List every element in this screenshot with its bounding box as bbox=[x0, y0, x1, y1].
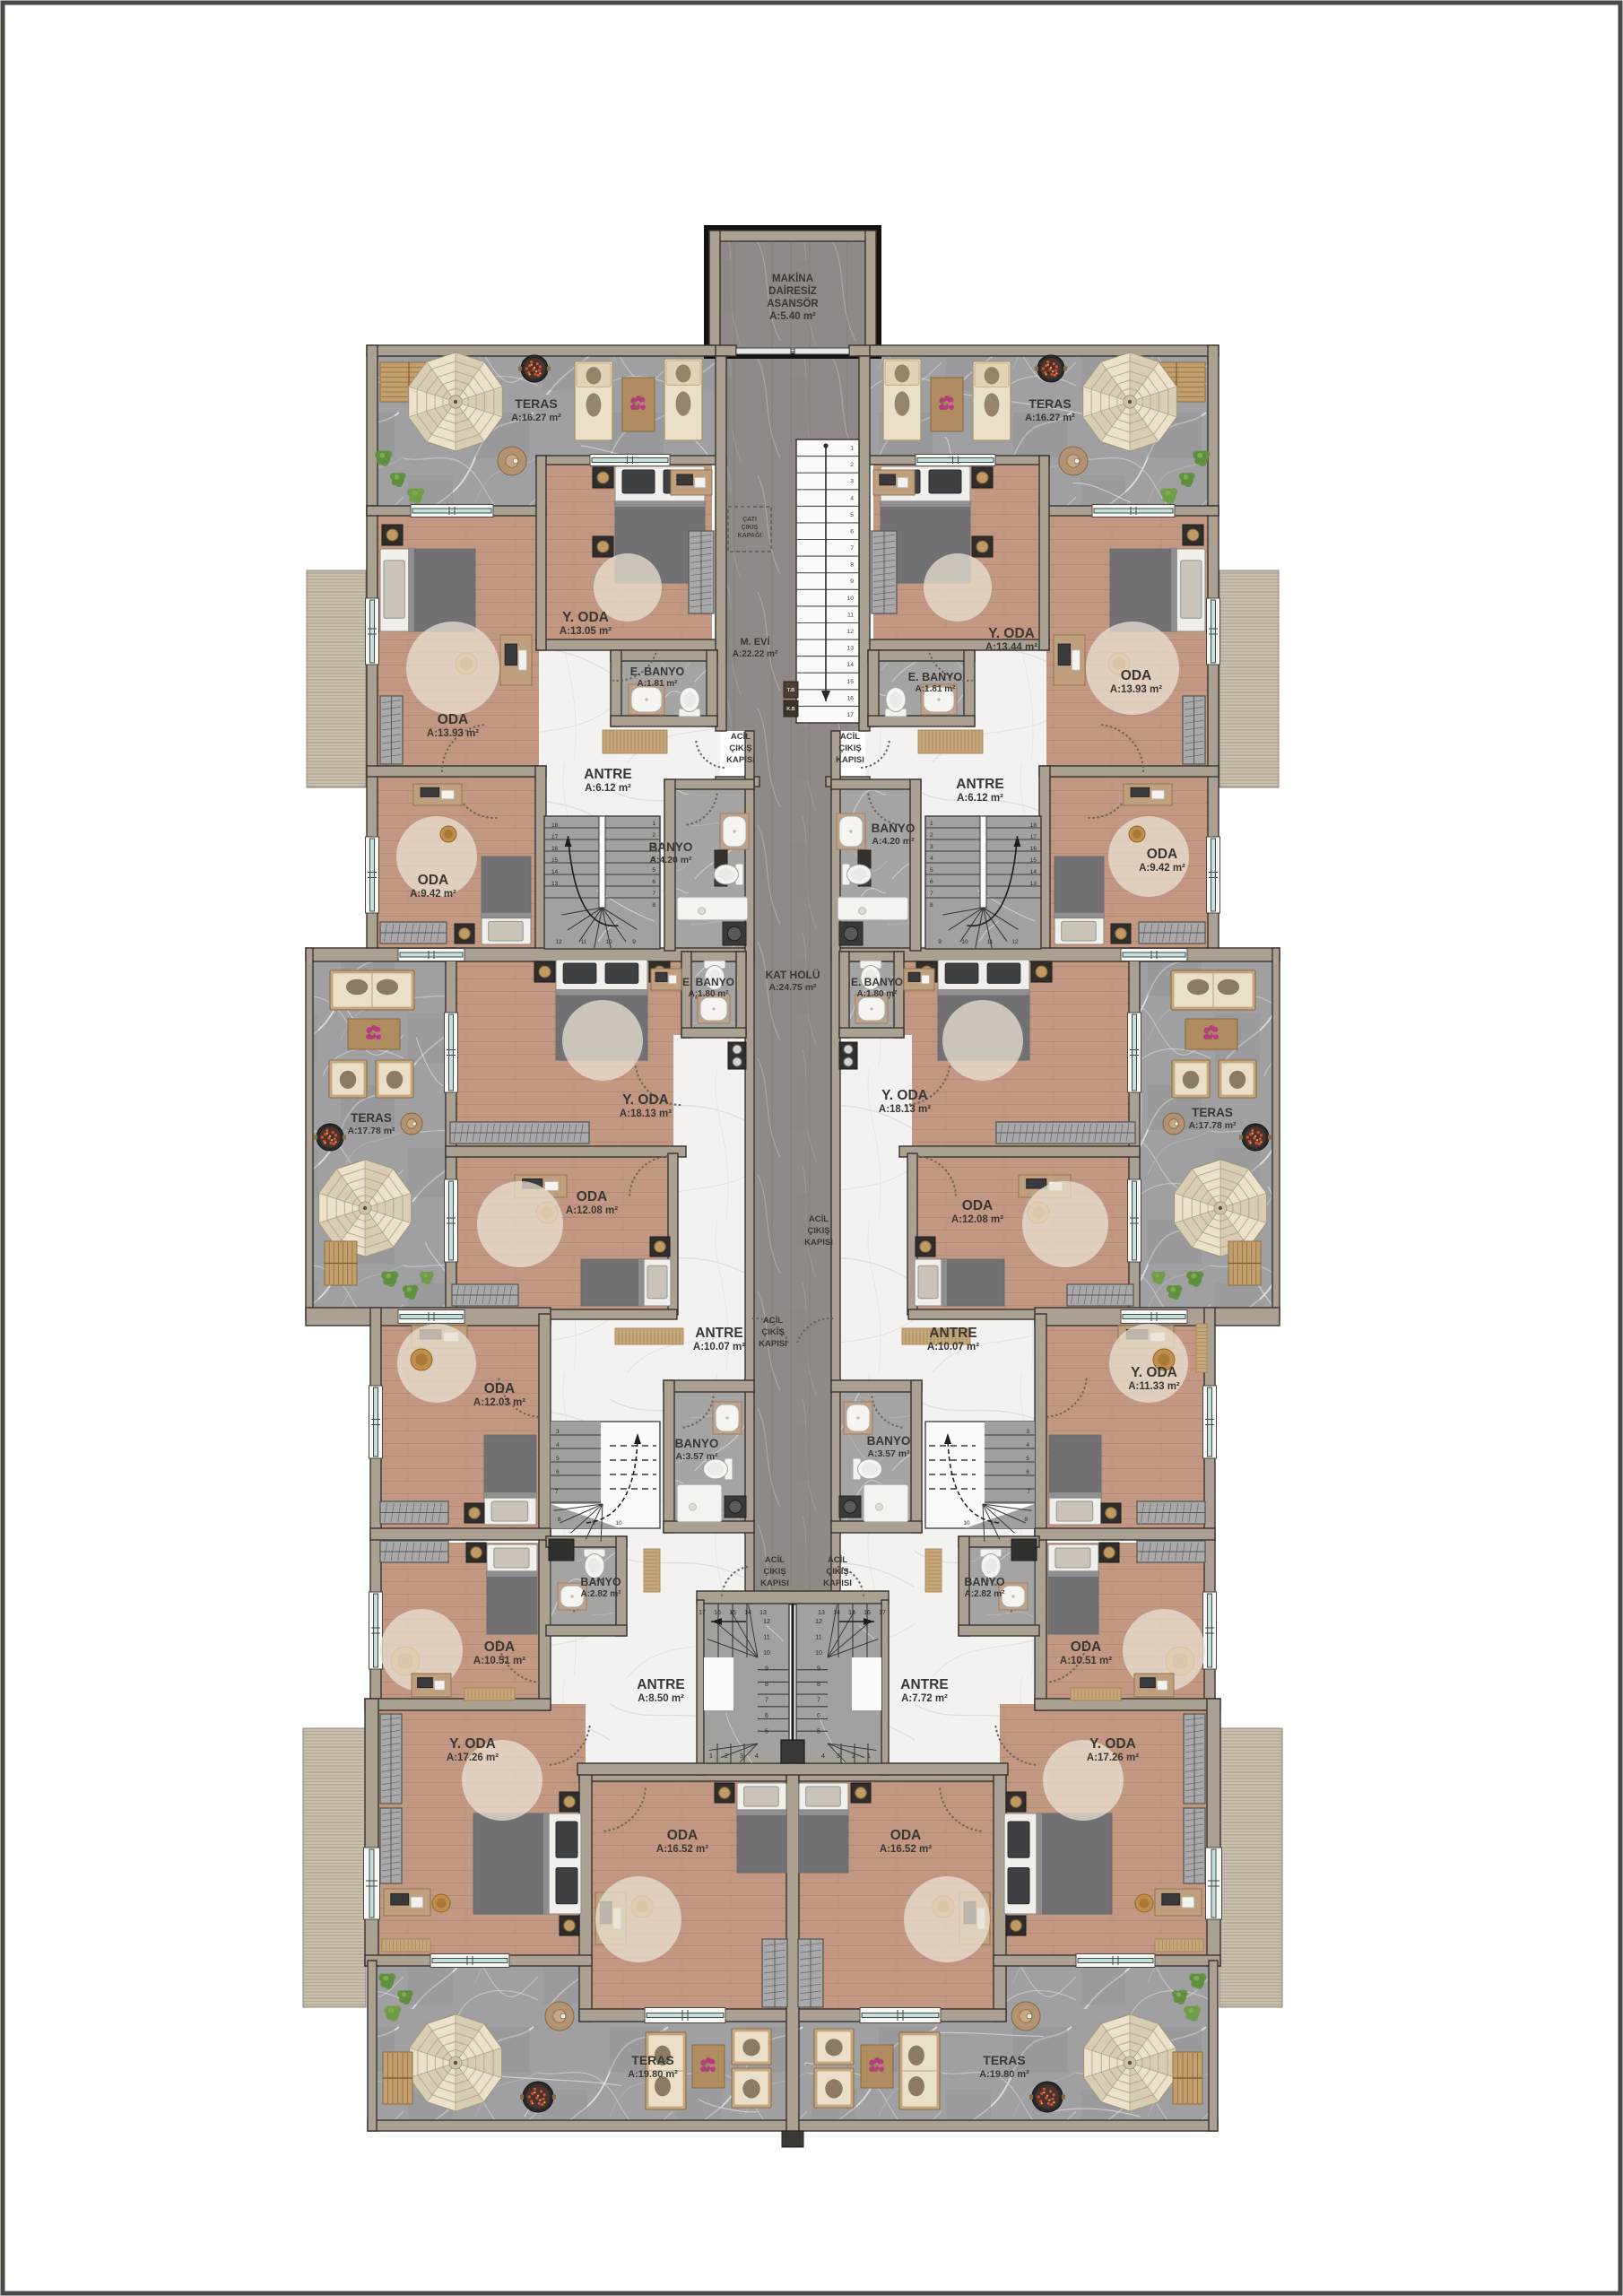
svg-text:Y. ODA: Y. ODA bbox=[881, 1088, 928, 1103]
svg-text:A:18.13 m²: A:18.13 m² bbox=[620, 1109, 672, 1119]
svg-text:7: 7 bbox=[930, 891, 933, 897]
svg-text:15: 15 bbox=[729, 1610, 736, 1616]
svg-text:Y. ODA: Y. ODA bbox=[449, 1736, 496, 1752]
svg-text:13: 13 bbox=[846, 646, 854, 652]
svg-text:3: 3 bbox=[1026, 1429, 1029, 1435]
svg-text:5: 5 bbox=[765, 1729, 768, 1735]
svg-text:DAİRESİZ: DAİRESİZ bbox=[768, 285, 817, 297]
svg-text:ACİL: ACİL bbox=[763, 1316, 783, 1326]
svg-text:Y. ODA: Y. ODA bbox=[1131, 1365, 1177, 1380]
svg-text:ODA: ODA bbox=[1121, 668, 1151, 683]
svg-text:KAPAĞI: KAPAĞI bbox=[738, 531, 762, 539]
svg-text:ACİL: ACİL bbox=[828, 1555, 847, 1565]
svg-text:6: 6 bbox=[556, 1469, 560, 1475]
svg-text:6: 6 bbox=[930, 879, 933, 885]
svg-text:KAPISI: KAPISI bbox=[759, 1339, 787, 1349]
svg-text:A:22.22 m²: A:22.22 m² bbox=[733, 649, 778, 659]
svg-text:7: 7 bbox=[817, 1698, 820, 1704]
svg-text:5: 5 bbox=[930, 867, 933, 874]
svg-text:9: 9 bbox=[592, 1520, 595, 1526]
svg-text:TERAS: TERAS bbox=[515, 396, 557, 411]
svg-text:17: 17 bbox=[551, 834, 559, 840]
svg-text:A:3.57 m²: A:3.57 m² bbox=[867, 1448, 910, 1459]
svg-text:TERAS: TERAS bbox=[983, 2053, 1025, 2067]
svg-text:ODA: ODA bbox=[484, 1381, 515, 1396]
svg-text:BANYO: BANYO bbox=[675, 1437, 719, 1450]
svg-text:E. BANYO: E. BANYO bbox=[630, 665, 685, 678]
svg-text:A:10.07 m²: A:10.07 m² bbox=[927, 1342, 979, 1352]
svg-text:ASANSÖR: ASANSÖR bbox=[767, 298, 819, 309]
svg-text:Y. ODA: Y. ODA bbox=[1089, 1736, 1136, 1752]
svg-text:14: 14 bbox=[551, 869, 559, 875]
svg-text:17: 17 bbox=[1030, 834, 1037, 840]
svg-text:KAPISI: KAPISI bbox=[823, 1578, 852, 1588]
svg-text:A:4.20 m²: A:4.20 m² bbox=[649, 855, 692, 865]
svg-text:1: 1 bbox=[867, 1753, 871, 1760]
svg-text:3: 3 bbox=[740, 1753, 743, 1760]
svg-text:ANTRE: ANTRE bbox=[929, 1326, 976, 1341]
svg-text:KAPISI: KAPISI bbox=[760, 1578, 789, 1588]
svg-text:3: 3 bbox=[837, 1753, 840, 1760]
svg-text:A:19.80 m²: A:19.80 m² bbox=[628, 2069, 678, 2080]
svg-text:KAPISI: KAPISI bbox=[726, 755, 755, 765]
svg-text:ÇIKIŞ: ÇIKIŞ bbox=[826, 1567, 848, 1577]
svg-text:10: 10 bbox=[963, 1520, 970, 1526]
svg-text:A:16.27 m²: A:16.27 m² bbox=[1025, 413, 1075, 423]
svg-text:12: 12 bbox=[763, 1619, 770, 1625]
svg-text:TERAS: TERAS bbox=[1192, 1106, 1233, 1119]
svg-text:9: 9 bbox=[765, 1666, 768, 1673]
svg-text:15: 15 bbox=[846, 679, 854, 685]
svg-text:3: 3 bbox=[930, 844, 933, 850]
svg-text:A:19.80 m²: A:19.80 m² bbox=[979, 2069, 1029, 2080]
svg-text:8: 8 bbox=[558, 1517, 561, 1523]
svg-text:BANYO: BANYO bbox=[867, 1434, 911, 1448]
svg-text:BANYO: BANYO bbox=[649, 840, 693, 854]
svg-text:A:2.82 m²: A:2.82 m² bbox=[964, 1589, 1005, 1599]
svg-text:9: 9 bbox=[632, 939, 636, 945]
svg-text:ACİL: ACİL bbox=[765, 1555, 785, 1565]
svg-text:A:17.78 m²: A:17.78 m² bbox=[347, 1126, 395, 1136]
svg-text:16: 16 bbox=[1030, 846, 1037, 852]
svg-text:11: 11 bbox=[847, 612, 854, 618]
svg-text:2: 2 bbox=[725, 1753, 728, 1760]
svg-text:14: 14 bbox=[833, 1610, 840, 1616]
svg-text:18: 18 bbox=[551, 822, 559, 829]
svg-text:9: 9 bbox=[850, 578, 854, 585]
svg-text:A:5.40 m²: A:5.40 m² bbox=[769, 311, 816, 322]
svg-text:TERAS: TERAS bbox=[1028, 396, 1071, 411]
svg-text:11: 11 bbox=[763, 1635, 769, 1641]
svg-text:T.B: T.B bbox=[787, 688, 794, 693]
svg-text:ÇATI: ÇATI bbox=[742, 517, 757, 523]
svg-text:ÇIKIŞ: ÇIKIŞ bbox=[742, 525, 759, 531]
svg-text:6: 6 bbox=[817, 1713, 820, 1719]
svg-text:13: 13 bbox=[551, 881, 559, 887]
svg-text:1: 1 bbox=[930, 821, 933, 827]
svg-text:ODA: ODA bbox=[667, 1828, 698, 1843]
svg-text:9: 9 bbox=[817, 1666, 820, 1673]
svg-text:14: 14 bbox=[1030, 869, 1037, 875]
svg-text:ANTRE: ANTRE bbox=[584, 767, 631, 782]
svg-text:7: 7 bbox=[1027, 1489, 1030, 1495]
svg-text:A:13.93 m²: A:13.93 m² bbox=[427, 728, 479, 739]
svg-text:A:16.52 m²: A:16.52 m² bbox=[656, 1844, 708, 1855]
svg-text:A:12.08 m²: A:12.08 m² bbox=[951, 1214, 1003, 1225]
svg-text:12: 12 bbox=[555, 939, 562, 945]
svg-text:10: 10 bbox=[605, 939, 612, 945]
svg-text:A:6.12 m²: A:6.12 m² bbox=[585, 783, 631, 794]
svg-text:ANTRE: ANTRE bbox=[695, 1326, 742, 1341]
svg-text:KAT HOLÜ: KAT HOLÜ bbox=[765, 968, 820, 981]
svg-text:ACİL: ACİL bbox=[731, 732, 751, 742]
svg-text:E. BANYO: E. BANYO bbox=[908, 671, 963, 683]
svg-text:15: 15 bbox=[551, 857, 559, 864]
svg-text:ODA: ODA bbox=[438, 712, 468, 727]
svg-text:1: 1 bbox=[652, 821, 655, 827]
svg-text:15: 15 bbox=[848, 1610, 855, 1616]
svg-text:TERAS: TERAS bbox=[351, 1111, 392, 1125]
svg-text:A:17.26 m²: A:17.26 m² bbox=[1087, 1752, 1139, 1763]
svg-text:ODA: ODA bbox=[890, 1828, 921, 1843]
svg-text:E. BANYO: E. BANYO bbox=[851, 976, 903, 988]
svg-text:12: 12 bbox=[1011, 939, 1019, 945]
svg-text:A:8.50 m²: A:8.50 m² bbox=[638, 1693, 684, 1704]
svg-text:Y. ODA: Y. ODA bbox=[988, 626, 1035, 641]
svg-text:2: 2 bbox=[652, 832, 655, 839]
svg-text:A:24.75 m²: A:24.75 m² bbox=[768, 982, 817, 993]
svg-text:17: 17 bbox=[699, 1610, 706, 1616]
svg-text:A:16.27 m²: A:16.27 m² bbox=[511, 413, 561, 423]
svg-text:ÇIKIŞ: ÇIKIŞ bbox=[729, 744, 751, 753]
svg-text:MAKİNA: MAKİNA bbox=[772, 273, 813, 284]
svg-text:BANYO: BANYO bbox=[964, 1576, 1004, 1588]
svg-text:A:9.42 m²: A:9.42 m² bbox=[1139, 863, 1185, 874]
svg-text:ÇIKIŞ: ÇIKIŞ bbox=[807, 1226, 829, 1236]
svg-text:10: 10 bbox=[961, 939, 968, 945]
svg-text:7: 7 bbox=[850, 545, 854, 552]
svg-text:BANYO: BANYO bbox=[872, 822, 916, 835]
svg-text:13: 13 bbox=[1030, 881, 1037, 887]
svg-text:6: 6 bbox=[765, 1713, 768, 1719]
svg-text:A:13.93 m²: A:13.93 m² bbox=[1110, 684, 1162, 695]
svg-text:A:12.08 m²: A:12.08 m² bbox=[566, 1205, 618, 1216]
svg-text:A:10.51 m²: A:10.51 m² bbox=[1060, 1656, 1112, 1666]
svg-text:ACİL: ACİL bbox=[840, 732, 860, 742]
svg-text:ODA: ODA bbox=[484, 1639, 515, 1655]
svg-text:A:16.52 m²: A:16.52 m² bbox=[880, 1844, 932, 1855]
svg-text:KAPISI: KAPISI bbox=[836, 755, 864, 765]
svg-text:11: 11 bbox=[987, 939, 994, 945]
svg-text:A:4.20 m²: A:4.20 m² bbox=[872, 836, 915, 847]
svg-text:16: 16 bbox=[864, 1610, 871, 1616]
svg-text:Y. ODA: Y. ODA bbox=[562, 610, 609, 625]
svg-text:1: 1 bbox=[850, 446, 854, 452]
svg-text:9: 9 bbox=[990, 1520, 994, 1526]
svg-text:10: 10 bbox=[815, 1650, 822, 1657]
svg-text:7: 7 bbox=[652, 891, 655, 897]
svg-text:ÇIKIŞ: ÇIKIŞ bbox=[763, 1567, 785, 1577]
svg-text:13: 13 bbox=[818, 1610, 825, 1616]
svg-text:5: 5 bbox=[850, 512, 854, 518]
svg-text:10: 10 bbox=[763, 1650, 770, 1657]
svg-text:2: 2 bbox=[850, 462, 854, 468]
svg-text:4: 4 bbox=[930, 856, 933, 862]
svg-text:16: 16 bbox=[714, 1610, 721, 1616]
svg-text:3: 3 bbox=[556, 1429, 560, 1435]
svg-text:ÇIKIŞ: ÇIKIŞ bbox=[838, 744, 861, 753]
svg-text:ODA: ODA bbox=[1147, 847, 1177, 862]
svg-text:ACİL: ACİL bbox=[809, 1214, 829, 1224]
svg-text:13: 13 bbox=[759, 1610, 767, 1616]
svg-text:A:1.80 m²: A:1.80 m² bbox=[688, 989, 729, 999]
svg-text:15: 15 bbox=[1030, 857, 1037, 864]
svg-text:M. EVİ: M. EVİ bbox=[740, 636, 769, 648]
svg-text:E. BANYO: E. BANYO bbox=[682, 976, 734, 988]
svg-text:4: 4 bbox=[850, 495, 854, 501]
svg-text:5: 5 bbox=[817, 1729, 820, 1735]
svg-text:A:1.81 m²: A:1.81 m² bbox=[915, 684, 956, 694]
svg-text:A:13.05 m²: A:13.05 m² bbox=[560, 626, 612, 637]
svg-text:A:18.13 m²: A:18.13 m² bbox=[879, 1104, 931, 1115]
svg-text:ODA: ODA bbox=[962, 1198, 993, 1213]
svg-text:A:17.78 m²: A:17.78 m² bbox=[1188, 1120, 1237, 1131]
svg-text:ANTRE: ANTRE bbox=[900, 1677, 948, 1692]
svg-text:ODA: ODA bbox=[418, 873, 448, 888]
svg-text:9: 9 bbox=[938, 939, 942, 945]
svg-text:BANYO: BANYO bbox=[580, 1576, 621, 1588]
svg-text:18: 18 bbox=[1030, 822, 1037, 829]
svg-text:10: 10 bbox=[846, 596, 854, 602]
svg-text:12: 12 bbox=[815, 1619, 822, 1625]
svg-text:A:17.26 m²: A:17.26 m² bbox=[447, 1752, 499, 1763]
svg-text:6: 6 bbox=[1026, 1469, 1029, 1475]
svg-text:16: 16 bbox=[846, 695, 854, 701]
svg-text:17: 17 bbox=[846, 712, 854, 718]
svg-text:A:2.82 m²: A:2.82 m² bbox=[580, 1589, 621, 1599]
svg-text:ODA: ODA bbox=[1071, 1639, 1101, 1655]
svg-text:A:1.81 m²: A:1.81 m² bbox=[637, 679, 678, 689]
svg-text:A:10.07 m²: A:10.07 m² bbox=[693, 1342, 745, 1352]
svg-text:2: 2 bbox=[852, 1753, 855, 1760]
svg-text:8: 8 bbox=[930, 902, 933, 909]
svg-text:4: 4 bbox=[556, 1442, 560, 1448]
svg-text:4: 4 bbox=[1026, 1442, 1029, 1448]
svg-text:8: 8 bbox=[765, 1682, 768, 1688]
svg-text:16: 16 bbox=[551, 846, 559, 852]
svg-text:TERAS: TERAS bbox=[631, 2053, 673, 2067]
svg-text:1: 1 bbox=[709, 1753, 713, 1760]
svg-text:7: 7 bbox=[555, 1489, 559, 1495]
svg-text:12: 12 bbox=[846, 629, 854, 635]
svg-text:A:7.72 m²: A:7.72 m² bbox=[901, 1693, 948, 1704]
svg-text:14: 14 bbox=[744, 1610, 751, 1616]
svg-text:8: 8 bbox=[1024, 1517, 1028, 1523]
svg-text:Y. ODA: Y. ODA bbox=[622, 1092, 669, 1108]
svg-text:A:11.33 m²: A:11.33 m² bbox=[1128, 1381, 1180, 1392]
svg-text:6: 6 bbox=[652, 879, 655, 885]
svg-text:A:10.51 m²: A:10.51 m² bbox=[473, 1656, 525, 1666]
svg-text:4: 4 bbox=[755, 1753, 759, 1760]
svg-text:8: 8 bbox=[850, 562, 854, 569]
svg-text:A:9.42 m²: A:9.42 m² bbox=[410, 889, 456, 900]
svg-text:A:13.44 m²: A:13.44 m² bbox=[985, 642, 1037, 653]
svg-text:K.B: K.B bbox=[786, 707, 795, 712]
svg-text:8: 8 bbox=[652, 902, 655, 909]
svg-text:ÇIKIŞ: ÇIKIŞ bbox=[761, 1327, 784, 1337]
svg-text:3: 3 bbox=[850, 479, 854, 485]
svg-text:10: 10 bbox=[615, 1520, 622, 1526]
svg-text:5: 5 bbox=[556, 1456, 560, 1462]
svg-text:A:6.12 m²: A:6.12 m² bbox=[957, 793, 1003, 804]
svg-text:A:12.03 m²: A:12.03 m² bbox=[473, 1397, 525, 1408]
svg-text:KAPISI: KAPISI bbox=[804, 1238, 833, 1248]
svg-text:ANTRE: ANTRE bbox=[956, 777, 1003, 792]
svg-text:2: 2 bbox=[930, 832, 933, 839]
svg-text:ODA: ODA bbox=[577, 1189, 607, 1205]
svg-text:4: 4 bbox=[821, 1753, 825, 1760]
svg-text:14: 14 bbox=[846, 662, 854, 668]
svg-text:ANTRE: ANTRE bbox=[637, 1677, 684, 1692]
svg-text:A:1.80 m²: A:1.80 m² bbox=[856, 989, 898, 999]
svg-text:11: 11 bbox=[581, 939, 587, 945]
svg-text:11: 11 bbox=[815, 1635, 821, 1641]
svg-text:8: 8 bbox=[817, 1682, 820, 1688]
svg-text:5: 5 bbox=[652, 867, 655, 874]
svg-text:17: 17 bbox=[879, 1610, 886, 1616]
svg-text:5: 5 bbox=[1026, 1456, 1029, 1462]
svg-text:7: 7 bbox=[765, 1698, 768, 1704]
svg-text:6: 6 bbox=[850, 529, 854, 535]
svg-text:A:3.57 m²: A:3.57 m² bbox=[675, 1451, 718, 1462]
